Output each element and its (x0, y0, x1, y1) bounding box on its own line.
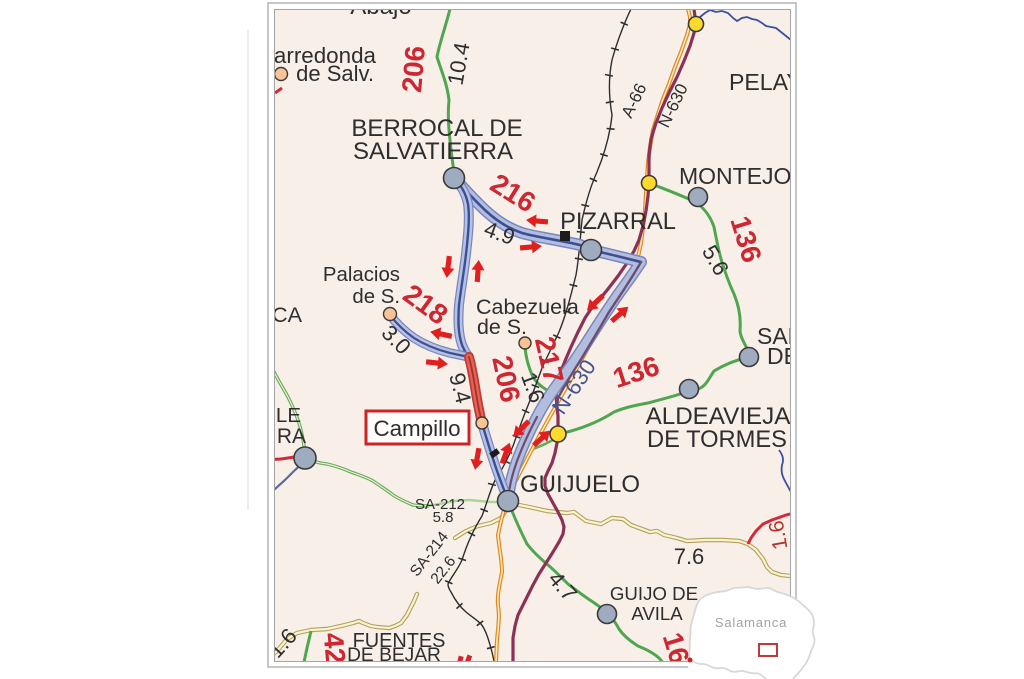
svg-text:DE TORMES: DE TORMES (647, 427, 787, 453)
svg-text:AVILA: AVILA (631, 603, 683, 624)
svg-text:206: 206 (396, 45, 431, 94)
svg-text:LE: LE (276, 404, 301, 427)
svg-text:de S.: de S. (477, 315, 527, 339)
svg-text:42: 42 (318, 631, 352, 665)
svg-text:MONTEJO: MONTEJO (679, 163, 791, 189)
svg-text:de Salv.: de Salv. (296, 61, 374, 86)
svg-text:SALVATIERRA: SALVATIERRA (353, 138, 513, 165)
svg-text:ALDEAVIEJA: ALDEAVIEJA (646, 403, 792, 430)
svg-text:5.8: 5.8 (433, 509, 454, 526)
svg-text:CA: CA (272, 302, 303, 327)
svg-text:RA: RA (277, 425, 306, 448)
svg-text:de S.: de S. (352, 286, 400, 308)
svg-text:GUIJO DE: GUIJO DE (610, 583, 698, 604)
svg-text:GUIJUELO: GUIJUELO (520, 471, 640, 498)
svg-text:Salamanca: Salamanca (715, 615, 787, 630)
svg-text:Campillo: Campillo (373, 416, 460, 441)
svg-text:7.6: 7.6 (674, 544, 705, 569)
svg-text:Palacios: Palacios (323, 264, 400, 286)
svg-text:PIZARRAL: PIZARRAL (560, 209, 676, 235)
